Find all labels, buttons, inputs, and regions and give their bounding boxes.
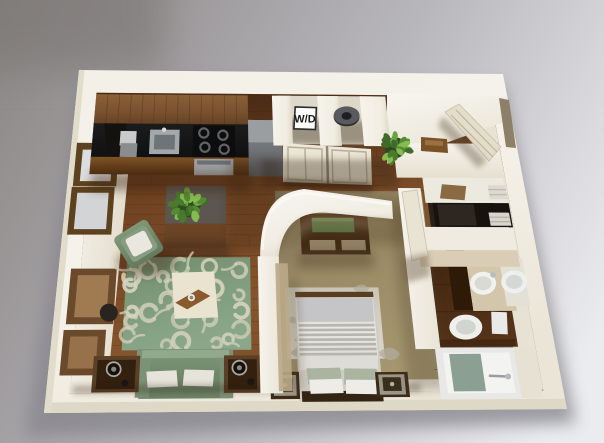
svg-text:W/D: W/D <box>294 113 315 125</box>
